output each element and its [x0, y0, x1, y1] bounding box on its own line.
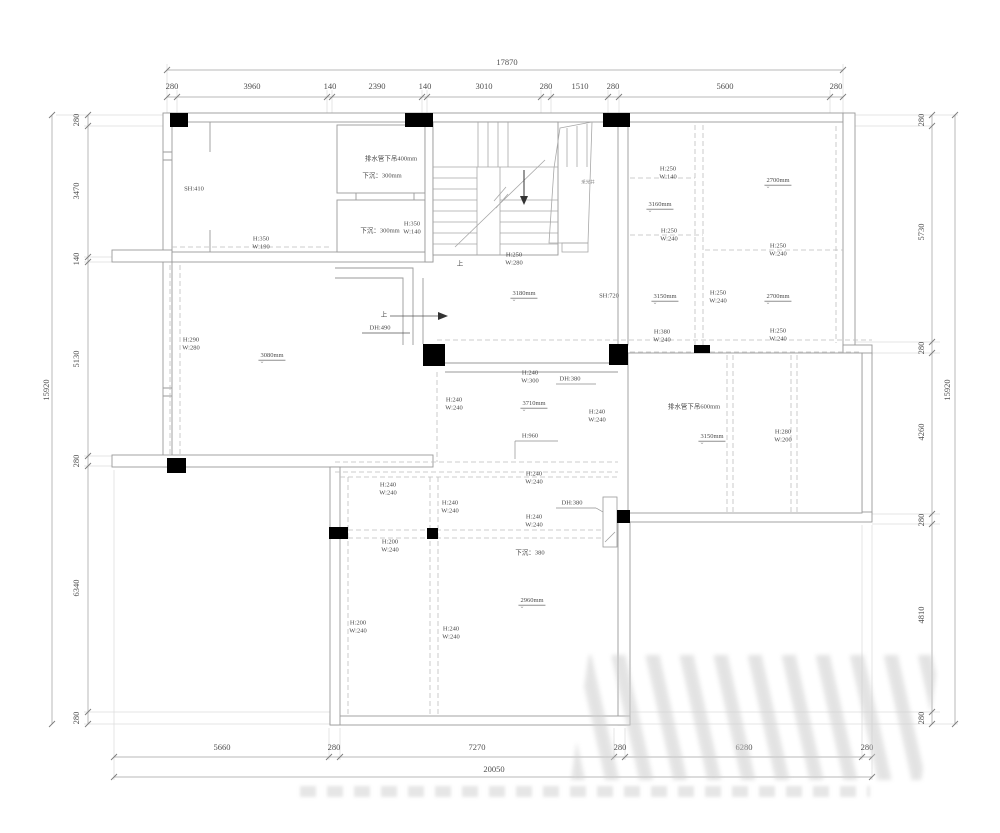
beam-size-label: H:240W:240	[442, 626, 459, 641]
beam-size-label: H:240W:240	[379, 482, 396, 497]
ceiling-height-label: 3080mm	[258, 352, 285, 361]
sunken-note: 下沉：300mm	[360, 227, 399, 235]
dimension-label: 2390	[369, 81, 386, 91]
dimension-label: 280	[916, 342, 926, 355]
dimension-label: 5130	[71, 351, 81, 368]
door-height-label: DH:380	[560, 375, 581, 383]
overall-dimension-label: 15920	[41, 379, 51, 400]
dimension-label: 280	[540, 81, 553, 91]
beam-size-label: H:250W:240	[709, 290, 726, 305]
overall-dimension-label: 20050	[483, 764, 504, 774]
dimension-label: 280	[861, 742, 874, 752]
dimension-label: 280	[830, 81, 843, 91]
dimension-label: 140	[324, 81, 337, 91]
beam-size-label: H:240W:300	[521, 370, 538, 385]
beam-size-label: H:250W:240	[660, 228, 677, 243]
dimension-label: 6280	[736, 742, 753, 752]
plan-linework	[0, 0, 1000, 833]
dimension-label: 280	[916, 712, 926, 725]
up-direction-label: 上	[381, 311, 388, 319]
floor-plan-drawing: SH:410H:350W:190排水管下吊400mm下沉：300mm下沉：300…	[0, 0, 1000, 833]
beam-size-label: H:250W:140	[659, 166, 676, 181]
beam-size-label: H:380W:240	[653, 329, 670, 344]
dimension-label: 280	[71, 114, 81, 127]
dimension-label: 280	[71, 455, 81, 468]
ceiling-height-label: 3180mm	[510, 290, 537, 299]
ceiling-height-label: 3150mm	[651, 293, 678, 302]
drain-pipe-note: 排水管下吊600mm	[668, 403, 720, 411]
ceiling-height-label: 2960mm	[518, 597, 545, 606]
door-swing	[603, 497, 617, 547]
dimension-label: 4260	[916, 424, 926, 441]
beam-size-label: H:250W:240	[769, 243, 786, 258]
beam-size-label: H:240W:240	[445, 397, 462, 412]
dimension-label: 1510	[572, 81, 589, 91]
dimension-label: 280	[166, 81, 179, 91]
beam-size-label: H:240W:240	[525, 514, 542, 529]
overall-dimension-label: 17870	[496, 57, 517, 67]
overall-dimension-label: 15920	[942, 379, 952, 400]
dimension-label: 7270	[469, 742, 486, 752]
drain-pipe-note: 排水管下吊400mm	[365, 155, 417, 163]
sill-height-label: SH:410	[184, 185, 204, 193]
dimension-label: 280	[71, 712, 81, 725]
beam-size-label: H:200W:240	[381, 539, 398, 554]
ceiling-height-label: 2700mm	[764, 177, 791, 186]
dimension-label: 140	[419, 81, 432, 91]
door-height-label: DH:380	[562, 499, 583, 507]
beam-size-label: H:250W:240	[769, 328, 786, 343]
walls	[112, 113, 872, 725]
dimension-label: 5660	[214, 742, 231, 752]
beam-size-label: H:240W:240	[441, 500, 458, 515]
beam-size-label: H:350W:190	[252, 236, 269, 251]
ceiling-height-label: 2700mm	[764, 293, 791, 302]
dimension-label: 280	[916, 114, 926, 127]
ceiling-height-label: 3710mm	[520, 400, 547, 409]
dimension-label: 280	[607, 81, 620, 91]
lightwell-label: 采光井	[581, 178, 595, 186]
dimension-label: 6340	[71, 580, 81, 597]
ceiling-height-label: 3160mm	[646, 201, 673, 210]
stair-up-label: 上	[457, 260, 464, 268]
height-label: H:960	[522, 432, 538, 440]
dimension-label: 3470	[71, 183, 81, 200]
dimension-label: 140	[71, 253, 81, 266]
dimension-label: 5600	[717, 81, 734, 91]
dimension-label: 3010	[476, 81, 493, 91]
beam-size-label: H:290W:280	[182, 337, 199, 352]
dimension-label: 4810	[916, 607, 926, 624]
ceiling-height-label: 3150mm	[698, 433, 725, 442]
dimension-label: 5730	[916, 224, 926, 241]
beam-size-label: H:350W:140	[403, 221, 420, 236]
beam-size-label: H:240W:240	[525, 471, 542, 486]
sunken-note: 下沉：300mm	[362, 172, 401, 180]
beam-size-label: H:200W:240	[349, 620, 366, 635]
dimension-label: 280	[328, 742, 341, 752]
dimension-label: 280	[916, 514, 926, 527]
sunken-note: 下沉：380	[515, 549, 544, 557]
sill-height-label: SH:720	[599, 292, 619, 300]
beam-size-label: H:240W:240	[588, 409, 605, 424]
dimension-label: 280	[614, 742, 627, 752]
dimension-label: 3960	[244, 81, 261, 91]
beam-size-label: H:250W:280	[505, 252, 522, 267]
beam-size-label: H:280W:200	[774, 429, 791, 444]
door-height-label: DH:490	[370, 324, 391, 332]
